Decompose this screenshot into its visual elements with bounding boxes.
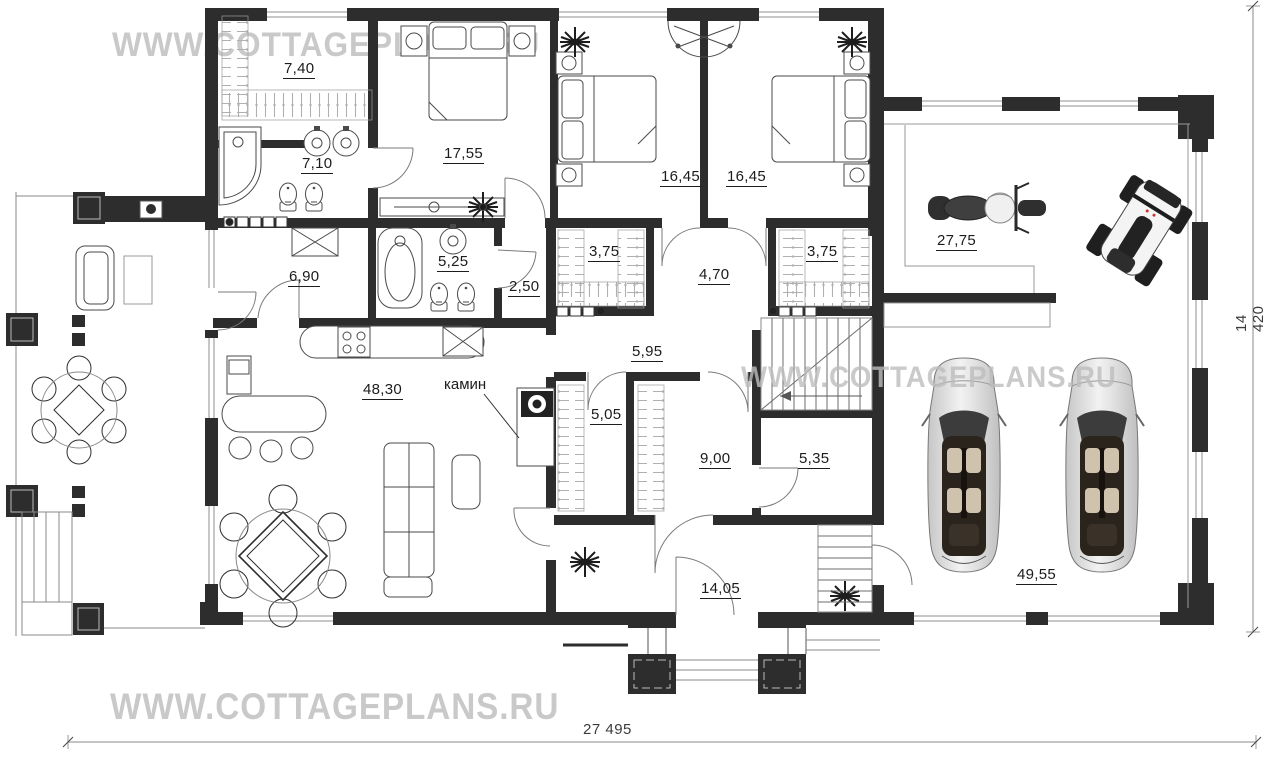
room-area-wardrobe-right: 3,75 <box>806 243 838 262</box>
atv-icon <box>1085 170 1197 288</box>
dimension-width: 27 495 <box>583 721 632 738</box>
room-area-vestibule: 14,05 <box>700 580 741 599</box>
terrace-furniture <box>32 246 152 464</box>
room-area-closet: 5,05 <box>590 406 622 425</box>
sofa <box>384 443 480 597</box>
room-area-living-room: 48,30 <box>362 381 403 400</box>
fireplace-label: камин <box>444 376 486 393</box>
room-area-hall-center: 4,70 <box>698 266 730 285</box>
room-area-bedroom-3: 16,45 <box>726 168 767 187</box>
room-area-wardrobe-top: 7,40 <box>283 60 315 79</box>
room-area-corridor: 5,95 <box>631 343 663 362</box>
room-area-car-garage: 49,55 <box>1016 566 1057 585</box>
bar-counter <box>222 356 326 462</box>
bedroom-master-furniture <box>380 22 535 222</box>
bedroom-3-furniture <box>772 52 870 186</box>
room-area-hall-small: 2,50 <box>508 278 540 297</box>
room-area-bathroom-2: 5,25 <box>437 253 469 272</box>
fireplace <box>484 388 554 466</box>
floor-plan: WWW.COTTAGEPLANS.RU WWW.COTTAGEPLANS.RU <box>0 0 1268 759</box>
bathroom-master-fixtures <box>219 126 359 211</box>
room-area-wardrobe-left: 3,75 <box>588 243 620 262</box>
bedroom-2-furniture <box>556 52 656 186</box>
room-area-bedroom-2: 16,45 <box>660 168 701 187</box>
room-area-pantry: 6,90 <box>288 268 320 287</box>
room-area-bathroom-master: 7,10 <box>301 155 333 174</box>
motorcycle-icon <box>928 183 1046 233</box>
room-area-storage: 5,35 <box>798 450 830 469</box>
room-area-bedroom-master: 17,55 <box>443 145 484 164</box>
room-area-entry-hall: 9,00 <box>699 450 731 469</box>
dining-table <box>220 485 346 627</box>
dimension-height: 14 420 <box>1233 297 1267 332</box>
entrance-porch <box>563 628 880 694</box>
room-area-moto-garage: 27,75 <box>936 232 977 251</box>
watermark-middle: WWW.COTTAGEPLANS.RU <box>741 361 1117 395</box>
